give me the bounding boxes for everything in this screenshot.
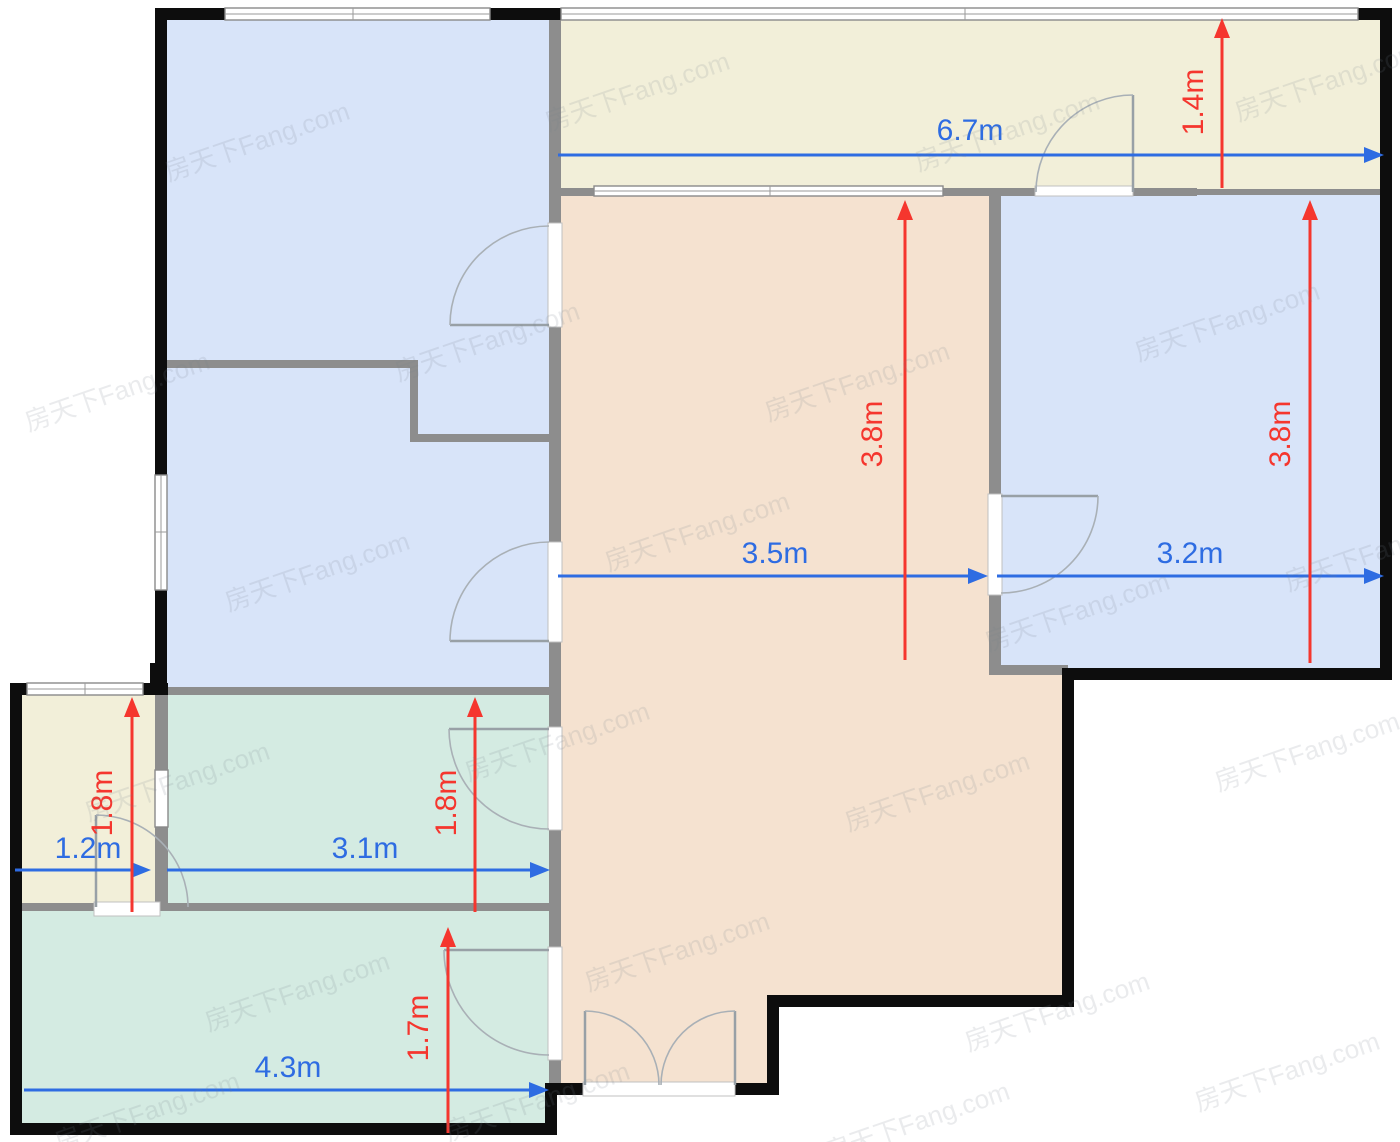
door-opening	[94, 902, 160, 916]
dim-label-bottom-room-height: 1.7m	[402, 995, 435, 1062]
wall	[989, 195, 1001, 494]
dim-label-mid-room-height: 1.8m	[430, 770, 463, 837]
door-opening	[988, 494, 1002, 595]
watermark-text: 房天下Fang.com	[1191, 1026, 1384, 1117]
wall	[150, 663, 167, 695]
room-mid-teal	[161, 691, 555, 909]
wall	[22, 903, 94, 911]
wall	[1062, 668, 1392, 680]
wall	[160, 903, 555, 911]
dim-label-living-width: 3.5m	[742, 537, 809, 570]
wall	[1197, 189, 1386, 195]
wall	[549, 830, 561, 947]
door-opening	[1035, 186, 1133, 196]
dim-label-bedroom-right-height: 3.8m	[1264, 401, 1297, 468]
watermark-text: 房天下Fang.com	[1211, 706, 1400, 797]
window-balcony-top	[561, 8, 1358, 20]
wall	[989, 665, 1068, 675]
wall	[490, 8, 561, 20]
door-opening	[548, 542, 562, 642]
floorplan: 6.7m 3.5m 3.2m 1.2m 3.1m 4.3m	[0, 0, 1400, 1142]
wall	[767, 995, 779, 1095]
wall	[167, 687, 557, 695]
dim-label-balcony-depth: 1.4m	[1177, 69, 1210, 136]
wall	[155, 8, 167, 475]
window-bath-top	[27, 683, 143, 695]
wall	[555, 188, 595, 196]
room-bedroom-right	[995, 192, 1386, 674]
dim-label-living-height: 3.8m	[856, 401, 889, 468]
dim-label-mid-room-width: 3.1m	[332, 832, 399, 865]
window-left-wall	[155, 475, 167, 590]
wall	[943, 188, 1035, 196]
wall	[549, 642, 561, 727]
wall	[1380, 8, 1392, 680]
rooms	[16, 14, 1386, 1129]
wall	[155, 8, 225, 20]
wall	[155, 695, 168, 770]
window-top-left	[225, 8, 490, 20]
wall	[410, 434, 557, 442]
watermark-text: 房天下Fang.com	[821, 1076, 1014, 1142]
wall	[1062, 668, 1074, 1007]
window-balcony-bottom	[594, 186, 943, 196]
wall	[1133, 188, 1197, 196]
wall	[735, 1083, 779, 1095]
door-opening	[548, 947, 562, 1060]
dim-label-bedroom-right-width: 3.2m	[1157, 537, 1224, 570]
wall	[10, 683, 22, 1135]
dim-label-bottom-room-width: 4.3m	[255, 1051, 322, 1084]
